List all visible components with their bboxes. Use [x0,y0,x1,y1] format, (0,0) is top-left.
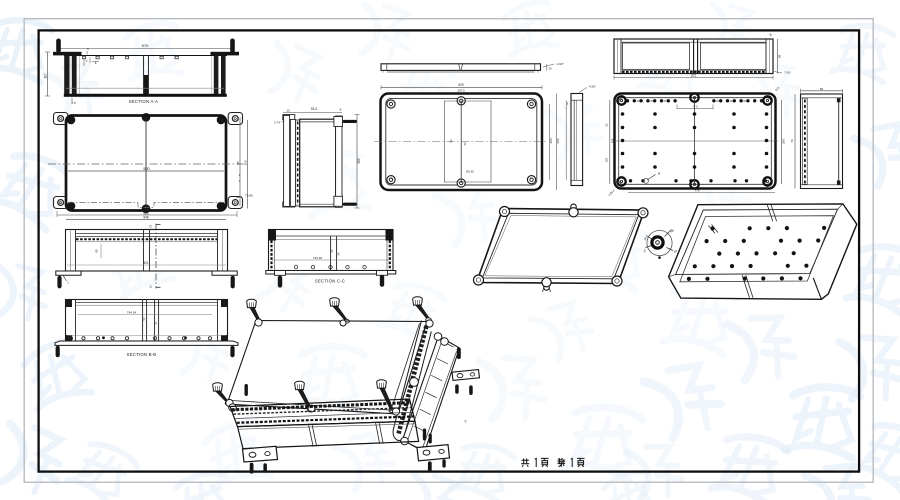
svg-text:85: 85 [95,249,99,253]
svg-text:Ø1.50: Ø1.50 [466,169,474,173]
svg-text:98: 98 [778,55,782,59]
svg-text:SECTION C-C: SECTION C-C [315,279,345,284]
svg-text:52: 52 [449,139,453,143]
svg-text:250: 250 [549,138,553,143]
svg-text:520: 520 [458,83,464,87]
svg-text:160: 160 [244,160,248,165]
svg-text:SECTION B-B: SECTION B-B [127,352,157,357]
svg-text:278: 278 [610,138,614,143]
svg-text:117: 117 [43,73,47,78]
svg-text:321: 321 [691,73,697,77]
svg-text:4.20°: 4.20° [589,85,597,89]
svg-text:C: C [149,225,152,229]
svg-text:53.4: 53.4 [311,107,317,111]
svg-text:305: 305 [357,158,361,164]
svg-text:546: 546 [143,216,149,220]
svg-text:776: 776 [694,188,699,192]
svg-text:1.60°: 1.60° [557,62,565,66]
svg-text:570: 570 [142,43,149,48]
svg-text:10: 10 [58,201,62,205]
svg-text:743.18: 743.18 [313,256,323,260]
svg-text:10: 10 [286,108,290,112]
svg-text:SECTION A-A: SECTION A-A [129,99,158,104]
svg-text:76: 76 [790,139,794,143]
svg-text:C: C [149,285,152,289]
svg-text:297.5: 297.5 [457,89,465,93]
svg-text:95: 95 [236,161,240,165]
svg-text:77.5: 77.5 [692,105,698,109]
svg-text:296: 296 [556,138,560,143]
svg-text:2.5: 2.5 [71,101,76,105]
svg-text:25: 25 [549,67,552,71]
svg-text:296: 296 [781,139,785,144]
svg-text:321: 321 [143,261,149,265]
svg-text:160: 160 [605,157,609,162]
svg-text:7.06°: 7.06° [784,71,791,75]
svg-text:744.34: 744.34 [127,311,137,315]
svg-text:520: 520 [143,167,149,171]
svg-text:0.74: 0.74 [274,120,280,124]
svg-text:0: 0 [465,420,467,424]
svg-text:75.85: 75.85 [245,194,253,198]
svg-text:66: 66 [820,87,824,91]
svg-text:32: 32 [463,142,467,146]
